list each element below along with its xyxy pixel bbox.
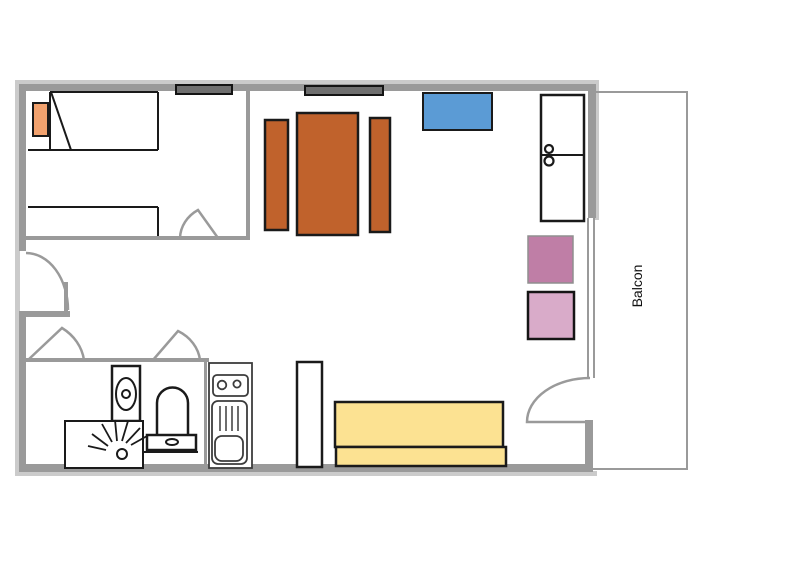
kitchen-hob-burner-right [233,380,240,387]
wall-left-lower [19,311,26,472]
floor-plan: Balcon [0,0,800,566]
shower [65,420,147,468]
kitchen-sink-unit [209,363,252,468]
sofa-bed [335,402,506,466]
bed1-blanket-diagonal [51,92,71,150]
toilet-bowl [157,388,188,438]
hall-wall-stub-horizontal [26,311,70,317]
sink-drain [122,390,130,398]
dining-table [297,113,358,235]
wall-left-upper [19,84,26,251]
wardrobe [297,362,322,467]
bathroom-door-left [28,328,84,360]
toilet-flush-button [166,439,178,445]
wall-right-upper [588,84,596,218]
wall-right-lower [585,420,593,472]
balcony-window-line-outer [593,218,595,378]
sofa-base [336,447,506,466]
window-bar-left [176,85,232,94]
kitchen-divider-wall [204,362,207,468]
bench-left [265,120,288,230]
balcony-label: Balcon [629,265,645,308]
floor-plan-drawing: Balcon [0,0,800,566]
bathroom-wall-top [26,358,209,362]
bathroom-sink [112,366,140,421]
entrance-door-arc [26,253,68,310]
balcony-window-line-inner [587,218,589,378]
tv-unit [423,93,492,130]
fridge-cabinet [541,95,584,221]
sofa-seat [335,402,503,447]
bedroom-wall-right [246,91,250,239]
dining-set [265,113,390,235]
balcony-door [527,378,590,422]
stool-light-pink [528,292,574,339]
stool-dark-pink [528,236,573,283]
bathroom-door-right [153,331,200,360]
fridge-handle-top [545,145,553,153]
kitchen-sink-basin [215,436,243,461]
bench-right [370,118,390,232]
kitchen-hob-burner-left [218,381,227,390]
bedroom-door [180,210,218,238]
toilet [142,388,198,453]
fridge-handle-bottom [545,157,554,166]
window-bar-right [305,86,383,95]
bed-pillow [33,103,48,136]
